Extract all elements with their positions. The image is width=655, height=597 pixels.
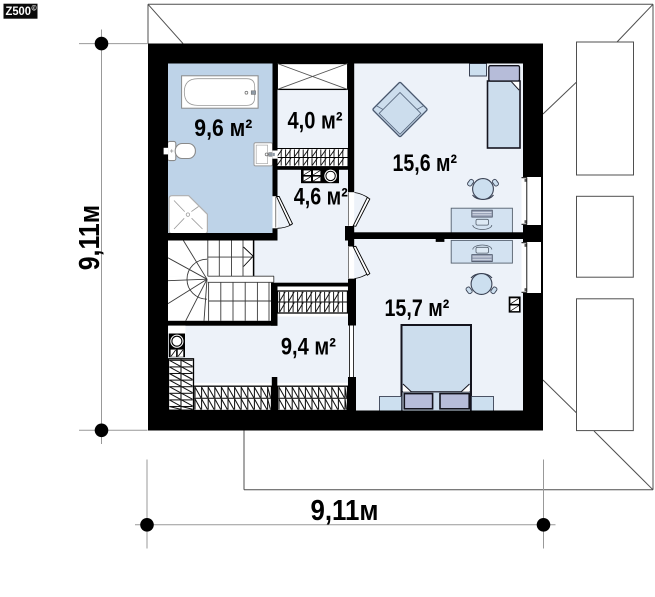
svg-text:9,4 м²: 9,4 м²: [281, 333, 336, 360]
svg-text:©: ©: [32, 5, 38, 13]
svg-text:9,11м: 9,11м: [74, 205, 106, 271]
svg-text:Z500: Z500: [6, 4, 32, 18]
svg-text:9,6 м²: 9,6 м²: [194, 115, 252, 142]
svg-text:15,7 м²: 15,7 м²: [385, 295, 450, 322]
svg-text:4,0 м²: 4,0 м²: [288, 107, 343, 134]
svg-text:4,6 м²: 4,6 м²: [294, 184, 348, 211]
svg-text:15,6 м²: 15,6 м²: [393, 150, 458, 177]
svg-text:9,11м: 9,11м: [311, 495, 379, 527]
